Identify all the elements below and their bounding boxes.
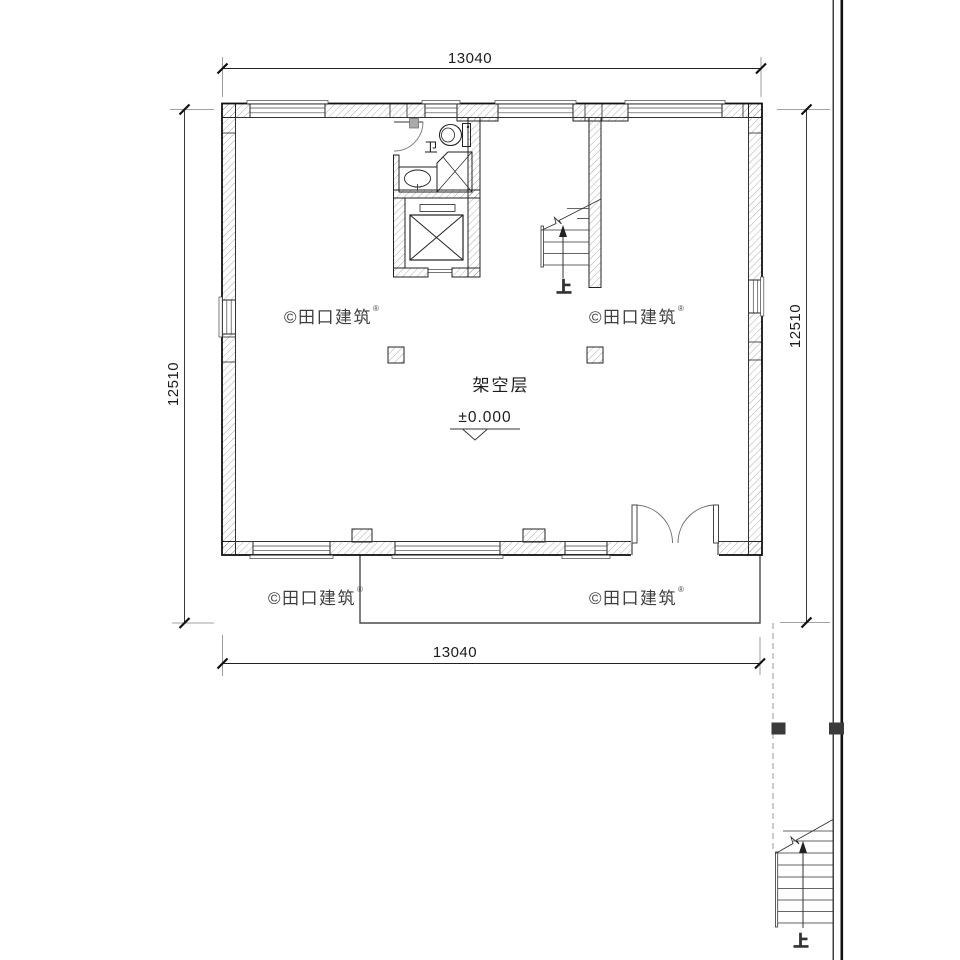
door-leaf: [714, 505, 719, 543]
window: [250, 546, 333, 559]
sink-icon: [399, 167, 437, 192]
toilet-icon: [440, 124, 471, 147]
watermarks: ©田口建筑 ® ©田口建筑 ® ©田口建筑 ® ©田口建筑 ®: [268, 304, 684, 608]
pier: [452, 268, 480, 277]
window: [219, 297, 231, 337]
svg-text:©田口建筑: ©田口建筑: [284, 308, 372, 327]
building-inner-face: [236, 118, 749, 542]
column: [523, 529, 545, 542]
windows: [219, 101, 764, 559]
window: [247, 101, 328, 113]
dim-label-bottom: 13040: [433, 644, 477, 661]
site-marker-square: [772, 723, 786, 735]
watermark: ©田口建筑 ®: [589, 585, 684, 608]
dimension-left: 12510: [165, 105, 214, 629]
elevator: [410, 205, 463, 273]
svg-text:®: ®: [678, 585, 684, 594]
dim-label-top: 13040: [448, 50, 492, 67]
stair-up-label: 上: [793, 933, 808, 950]
dimension-top: 13040: [218, 50, 767, 97]
bathroom-label: 卫: [424, 140, 438, 155]
column: [587, 347, 603, 363]
pier: [749, 313, 763, 555]
dim-label-right: 12510: [787, 304, 804, 348]
dim-label-left: 12510: [165, 362, 182, 406]
door-swing-arc: [635, 505, 673, 543]
watermark: ©田口建筑 ®: [284, 304, 379, 327]
svg-text:®: ®: [373, 304, 379, 313]
window: [422, 101, 460, 113]
pier: [500, 542, 565, 556]
door-handle: [410, 119, 419, 129]
exterior-stairs: 上: [776, 820, 834, 951]
entry-double-door: [631, 505, 719, 557]
floor-plan-canvas: ©田口建筑 ® ©田口建筑 ® ©田口建筑 ® ©田口建筑 ®: [0, 0, 960, 960]
dimension-bottom: 13040: [218, 635, 766, 676]
elevation-triangle-icon: [463, 430, 487, 441]
bathroom: 卫: [394, 119, 472, 193]
window: [625, 101, 725, 113]
building-walls: [222, 104, 762, 556]
site-marker-square: [829, 723, 844, 735]
dimension-right: 12510: [777, 105, 830, 628]
pier: [325, 104, 425, 118]
stair-up-label: 上: [556, 279, 571, 296]
window: [562, 546, 610, 559]
svg-text:©田口建筑: ©田口建筑: [589, 589, 677, 608]
floor-plan-drawing: ©田口建筑 ® ©田口建筑 ® ©田口建筑 ® ©田口建筑 ®: [0, 0, 960, 960]
pier: [749, 104, 763, 281]
elevation-label: ±0.000: [458, 409, 511, 426]
interior-wall: [394, 155, 400, 190]
pier: [607, 542, 632, 556]
pier: [330, 542, 395, 556]
porch-outline: [360, 556, 760, 624]
watermark: ©田口建筑 ®: [589, 304, 684, 327]
door-swing-arc: [678, 505, 716, 543]
bathroom-door: [394, 119, 423, 152]
shower-icon: [437, 152, 472, 192]
interior-wall: [394, 198, 406, 268]
svg-text:®: ®: [678, 304, 684, 313]
elevation-marker: ±0.000: [450, 409, 520, 440]
sheet-border-lines: [833, 0, 842, 960]
window: [392, 546, 503, 559]
door-leaf: [632, 505, 637, 543]
column: [388, 347, 404, 363]
pier: [222, 542, 253, 556]
window: [753, 277, 764, 316]
column: [352, 529, 372, 542]
building-outer-face: [222, 104, 762, 556]
pier: [718, 542, 762, 556]
window: [495, 101, 576, 113]
svg-text:©田口建筑: ©田口建筑: [589, 308, 677, 327]
pier: [222, 334, 236, 555]
elevator-door: [420, 205, 455, 212]
room-label: 架空层: [473, 376, 530, 395]
svg-text:©田口建筑: ©田口建筑: [268, 589, 356, 608]
watermark: ©田口建筑 ®: [268, 585, 363, 608]
pier: [394, 268, 429, 277]
